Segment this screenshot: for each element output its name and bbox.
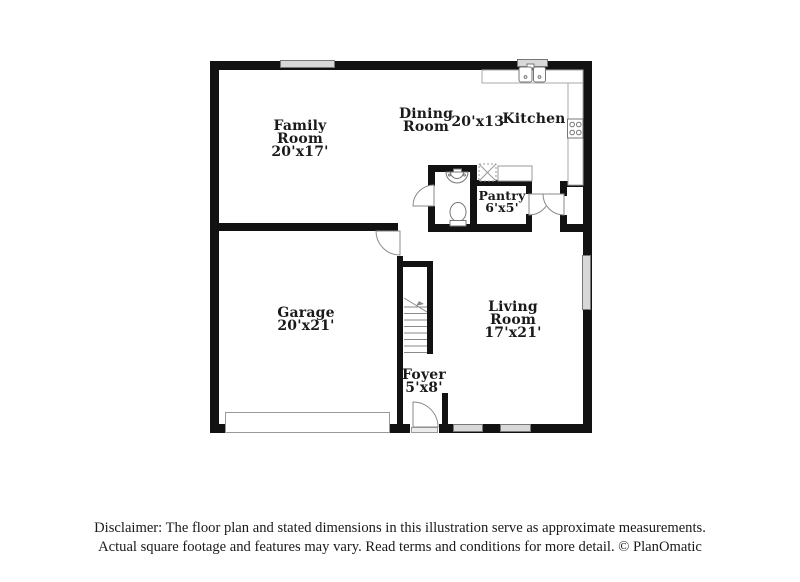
wall-pantry-top — [477, 180, 532, 186]
closet-door — [543, 194, 564, 215]
bathroom-door — [413, 185, 434, 206]
disclaimer-line-2: Actual square footage and features may v… — [0, 538, 800, 557]
entry-door-sill — [411, 427, 438, 433]
toilet-icon — [450, 203, 466, 227]
window-kitchen-top — [517, 59, 548, 67]
pantry-door — [529, 194, 550, 215]
room-label-family: Family Room 20'x17' — [267, 120, 333, 159]
room-dims: 20'x21' — [271, 320, 341, 333]
staircase-icon — [404, 298, 427, 353]
wall-bath-right — [470, 165, 477, 232]
wall-bath-pantry-bottom — [428, 224, 532, 232]
wall-pantry-right-lower — [526, 214, 532, 224]
window-living-bottom-right — [500, 424, 531, 432]
window-living-bottom-left — [453, 424, 483, 432]
room-label-dining: Dining Room — [397, 108, 455, 134]
room-label-garage: Garage 20'x21' — [271, 307, 341, 333]
wall-pantry-right-upper — [526, 180, 532, 194]
wall-bath-left-upper — [428, 165, 435, 186]
room-dims: 17'x21' — [484, 327, 542, 340]
family-hall-door — [376, 231, 400, 255]
room-dims: 6'x5' — [478, 202, 526, 214]
wall-closet-stub-top — [560, 187, 567, 196]
appliance-icon — [479, 164, 496, 181]
disclaimer-line-1: Disclaimer: The floor plan and stated di… — [0, 519, 800, 538]
floor-plan: Family Room 20'x17' Dining Room 20'x13' … — [0, 0, 800, 582]
wall-stair-right — [427, 261, 433, 354]
room-dims: 20'x17' — [267, 146, 333, 159]
room-dims: 5'x8' — [394, 382, 454, 395]
wall-foyer-left — [397, 256, 403, 424]
garage-door-icon — [225, 412, 390, 433]
room-label-living: Living Room 17'x21' — [484, 301, 542, 340]
room-name: Family Room — [273, 118, 326, 147]
wall-exterior-left — [210, 61, 219, 433]
wall-closet-bottom — [560, 224, 583, 232]
wall-exterior-right — [583, 61, 592, 433]
room-name: Kitchen — [502, 111, 565, 127]
wall-family-garage — [219, 223, 398, 231]
room-label-kitchen: Kitchen — [499, 113, 569, 126]
window-family-top — [280, 60, 335, 68]
room-name: Living Room — [488, 299, 538, 328]
disclaimer-text: Disclaimer: The floor plan and stated di… — [0, 519, 800, 556]
wall-closet-stub-bottom — [560, 215, 567, 224]
room-label-foyer: Foyer 5'x8' — [394, 369, 454, 395]
room-label-pantry: Pantry 6'x5' — [478, 190, 526, 213]
stove-icon — [568, 119, 584, 138]
wall-foyer-right-stub — [442, 393, 448, 424]
window-living-right — [582, 255, 591, 310]
room-name: Dining Room — [399, 106, 453, 135]
